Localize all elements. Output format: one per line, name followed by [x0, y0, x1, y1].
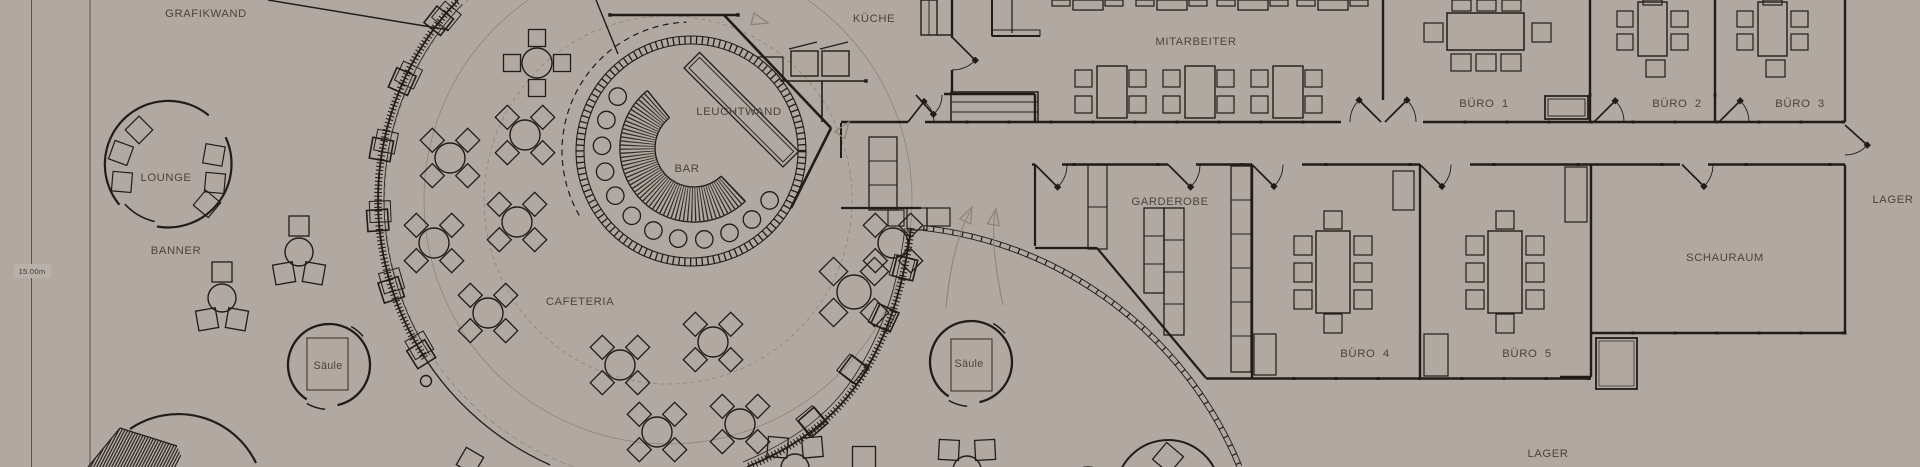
svg-text:BANNER: BANNER — [151, 245, 201, 257]
svg-text:CAFETERIA: CAFETERIA — [546, 296, 614, 308]
svg-text:BÜRO 5: BÜRO 5 — [1502, 348, 1551, 360]
svg-text:LAGER: LAGER — [1872, 194, 1913, 206]
svg-text:GARDEROBE: GARDEROBE — [1131, 196, 1208, 208]
svg-text:KÜCHE: KÜCHE — [853, 13, 895, 25]
svg-text:BÜRO 3: BÜRO 3 — [1775, 98, 1824, 110]
svg-text:BÜRO 2: BÜRO 2 — [1652, 98, 1701, 110]
svg-text:LEUCHTWAND: LEUCHTWAND — [696, 106, 781, 118]
svg-text:MITARBEITER: MITARBEITER — [1155, 36, 1236, 48]
svg-text:LAGER: LAGER — [1527, 448, 1568, 460]
svg-text:BÜRO 4: BÜRO 4 — [1340, 348, 1389, 360]
svg-text:LOUNGE: LOUNGE — [140, 172, 191, 184]
svg-text:BÜRO 1: BÜRO 1 — [1459, 98, 1508, 110]
svg-text:Säule: Säule — [313, 360, 342, 372]
svg-text:BAR: BAR — [675, 163, 700, 175]
svg-text:SCHAURAUM: SCHAURAUM — [1686, 252, 1764, 264]
svg-text:15.00m: 15.00m — [19, 267, 46, 276]
svg-text:Säule: Säule — [954, 358, 983, 370]
svg-text:GRAFIKWAND: GRAFIKWAND — [165, 8, 247, 20]
